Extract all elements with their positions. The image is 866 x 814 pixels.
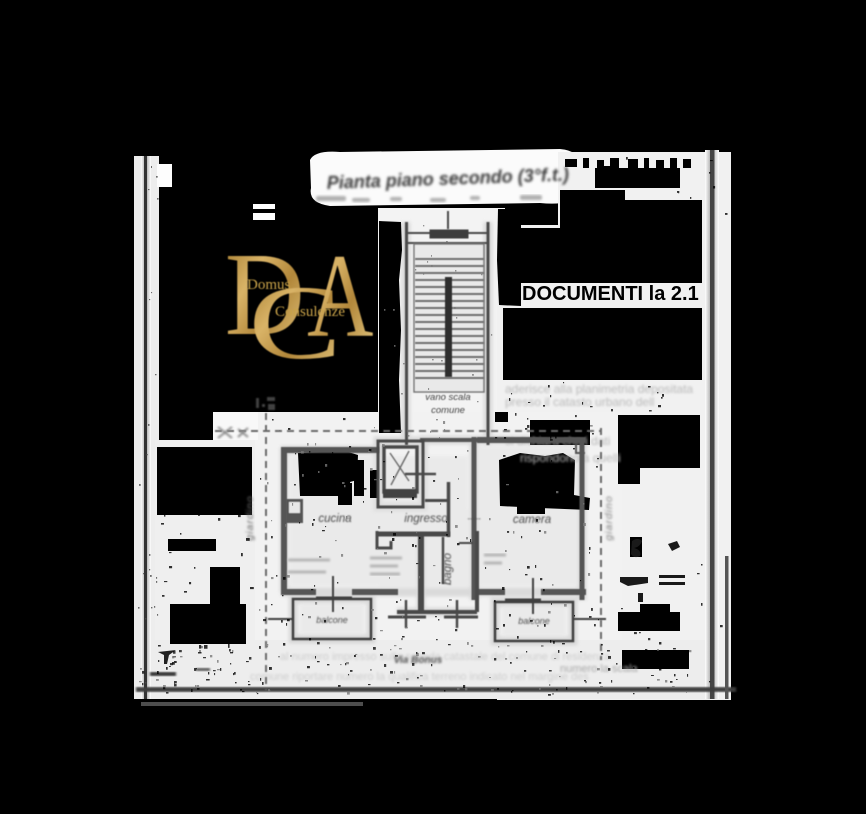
- svg-text:giardino: giardino: [603, 495, 615, 540]
- svg-text:ingresso: ingresso: [404, 513, 448, 525]
- svg-text:rispondono a quelli: rispondono a quelli: [520, 451, 621, 465]
- svg-text:Domus: Domus: [247, 277, 291, 293]
- svg-text:Via Bonus: Via Bonus: [394, 655, 443, 666]
- svg-text:cucina: cucina: [318, 513, 351, 525]
- svg-text:bagno: bagno: [442, 552, 454, 585]
- svg-text:presso il catasto urbano dell: presso il catasto urbano dell: [505, 395, 654, 409]
- svg-text:-----: -----: [467, 514, 481, 523]
- svg-text:DOCUMENTI la 2.1: DOCUMENTI la 2.1: [522, 283, 699, 305]
- svg-text:giardino: giardino: [244, 495, 256, 540]
- svg-text:comune: comune: [431, 405, 465, 416]
- svg-text:vano scala: vano scala: [425, 392, 470, 403]
- svg-text:Consulenze: Consulenze: [275, 304, 345, 320]
- svg-text:aderisce alla planimetria depo: aderisce alla planimetria depositata: [505, 382, 693, 396]
- svg-text:al numero impresso sulla sched: al numero impresso sulla scheda catastal…: [280, 651, 611, 663]
- svg-text:comune riportare numero la qua: comune riportare numero la qualifica ter…: [250, 671, 589, 683]
- svg-text:A: A: [307, 230, 373, 363]
- svg-text:balcone: balcone: [316, 615, 348, 625]
- svg-text:camera: camera: [513, 514, 551, 526]
